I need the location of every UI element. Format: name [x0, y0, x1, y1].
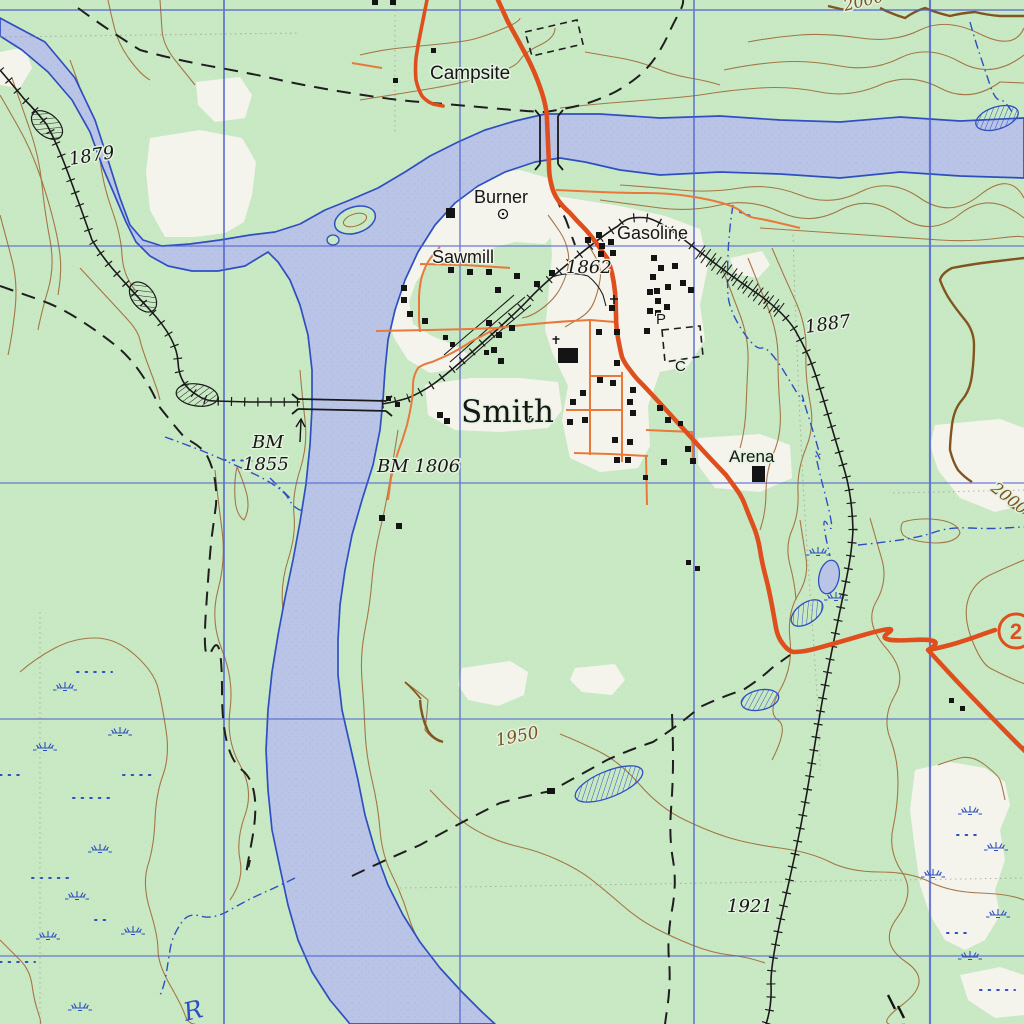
label-spot-1862: 1862: [566, 257, 612, 278]
topo-map: 2 Campsite: [0, 0, 1024, 1024]
label-bm-east: BM 1806: [376, 456, 460, 477]
label-smith: Smith: [461, 394, 554, 430]
label-cemetery: C: [675, 358, 686, 375]
label-spot-1921: 1921: [727, 896, 773, 917]
label-arena: Arena: [729, 447, 775, 466]
label-gasoline: Gasoline: [617, 223, 688, 243]
topo-map-canvas[interactable]: 2 Campsite: [0, 0, 1024, 1024]
label-sawmill: Sawmill: [432, 247, 494, 267]
well-symbol: [499, 210, 508, 219]
label-post-office: P: [656, 311, 666, 328]
label-campsite: Campsite: [430, 63, 510, 84]
route-shield-number: 2: [1010, 619, 1022, 644]
label-bm-west-2: 1855: [243, 454, 289, 475]
river-islet: [327, 235, 339, 245]
label-burner: Burner: [474, 187, 528, 207]
label-bm-west-1: BM: [251, 432, 284, 453]
